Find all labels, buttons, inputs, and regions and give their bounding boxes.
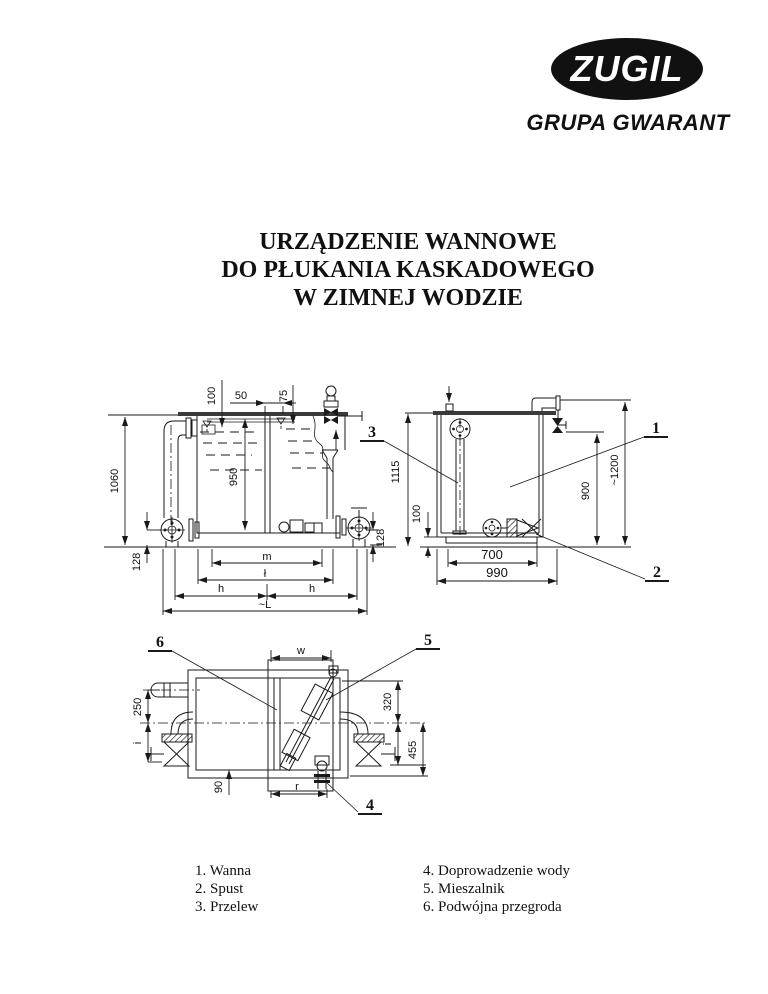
front-dim-950: 950	[228, 468, 240, 486]
front-dim-m: m	[262, 551, 271, 563]
drain-pipe-front-right	[327, 458, 372, 547]
title-line-1: URZĄDZENIE WANNOWE	[88, 228, 728, 256]
part-label-3: 3	[368, 424, 376, 441]
logo-group-name: GRUPA GWARANT	[496, 110, 760, 136]
side-dim-700: 700	[481, 547, 503, 562]
front-dim-l: ł	[264, 568, 267, 580]
top-view-drawing: w 250 i 90 r 320 i 4	[132, 632, 440, 814]
front-dim-L: ~L	[259, 599, 272, 611]
inlet-valve-front	[322, 386, 362, 458]
front-dim-h-left: h	[218, 583, 224, 595]
legend-item-1: 1. Wanna	[195, 862, 258, 880]
title-line-2: DO PŁUKANIA KASKADOWEGO	[88, 256, 728, 284]
side-dim-1115: 1115	[390, 461, 402, 484]
water-level-symbol	[277, 418, 285, 429]
overflow-pipe-front	[164, 418, 197, 525]
top-dim-320: 320	[382, 693, 394, 711]
front-dim-50: 50	[235, 390, 247, 402]
top-dim-w: w	[296, 645, 305, 657]
legend-item-3: 3. Przelew	[195, 898, 258, 916]
top-dim-90: 90	[213, 781, 225, 793]
front-dim-75: 75	[278, 390, 290, 402]
title-line-3: W ZIMNEJ WODZIE	[88, 284, 728, 312]
part-label-1: 1	[652, 420, 660, 437]
side-view-dimensions: 1115 100 700 990 900 ~1200	[390, 400, 631, 585]
front-dim-128-left: 128	[131, 553, 143, 571]
zugil-logo-text: ZUGIL	[571, 48, 684, 90]
legend-column-right: 4. Doprowadzenie wody 5. Mieszalnik 6. P…	[423, 862, 570, 916]
side-view-drawing: 1115 100 700 990 900 ~1200	[360, 386, 669, 585]
front-view-drawing: 1060 128 100 50 75 950 128	[104, 380, 396, 615]
side-dim-900: 900	[580, 482, 592, 500]
part-label-2: 2	[653, 564, 661, 581]
flange-front-left	[159, 517, 199, 547]
side-dim-1200: ~1200	[609, 455, 621, 486]
front-dim-h-right: h	[309, 583, 315, 595]
top-dim-455: 455	[407, 741, 419, 759]
legend-column-left: 1. Wanna 2. Spust 3. Przelew	[195, 862, 258, 916]
tank-rim-side	[433, 411, 556, 415]
top-dim-r: r	[295, 781, 299, 793]
drain-side	[483, 519, 541, 537]
double-partition-top	[274, 678, 280, 770]
zugil-logo: ZUGIL	[551, 38, 703, 100]
legend-item-2: 2. Spust	[195, 880, 258, 898]
drain-fittings-front	[279, 520, 322, 533]
top-dim-i-right: i	[382, 743, 394, 745]
top-dim-250: 250	[132, 698, 144, 716]
page-title: URZĄDZENIE WANNOWE DO PŁUKANIA KASKADOWE…	[88, 228, 728, 312]
top-dim-i-left: i	[132, 742, 144, 744]
tank-rim	[178, 412, 348, 416]
side-dim-990: 990	[486, 565, 508, 580]
legend-item-5: 5. Mieszalnik	[423, 880, 570, 898]
legend-item-4: 4. Doprowadzenie wody	[423, 862, 570, 880]
legend-item-6: 6. Podwójna przegroda	[423, 898, 570, 916]
technical-drawing: 1060 128 100 50 75 950 128	[0, 375, 768, 830]
side-view-part-labels: 3 1 2	[360, 420, 669, 581]
part-label-4: 4	[366, 797, 374, 814]
overflow-pipe-side	[450, 418, 470, 535]
mixer-top	[280, 666, 338, 771]
part-label-6: 6	[156, 634, 164, 651]
side-dim-100: 100	[411, 505, 423, 523]
front-dim-1060: 1060	[109, 469, 121, 493]
water-level-symbol	[203, 421, 211, 432]
drain-valve-left-top	[151, 712, 193, 766]
front-dim-128-right: 128	[375, 529, 387, 547]
front-dim-100: 100	[206, 387, 218, 405]
partition-front	[265, 416, 270, 533]
document-page: ZUGIL GRUPA GWARANT URZĄDZENIE WANNOWE D…	[0, 0, 768, 994]
part-label-5: 5	[424, 632, 432, 649]
